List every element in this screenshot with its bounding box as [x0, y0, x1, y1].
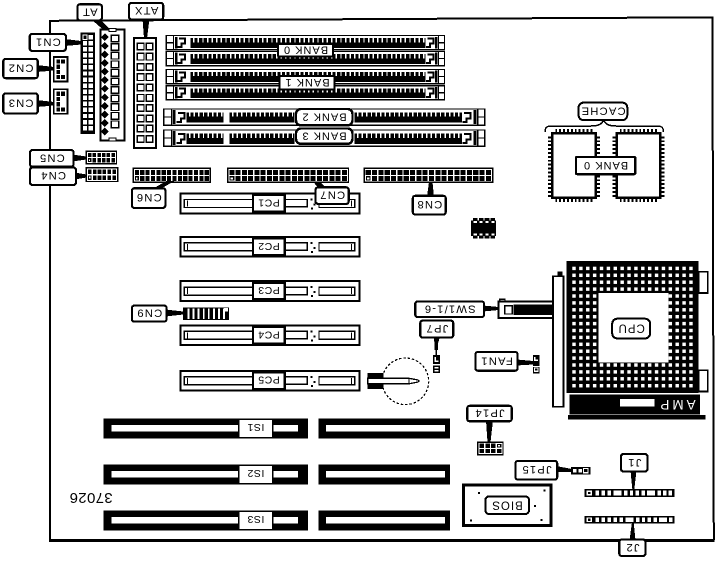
- svg-text:CN5: CN5: [39, 151, 65, 163]
- svg-text:BANK 0: BANK 0: [283, 44, 328, 56]
- svg-text:IS1: IS1: [247, 421, 264, 433]
- svg-text:JP14: JP14: [474, 407, 504, 419]
- svg-text:JP7: JP7: [425, 322, 448, 334]
- svg-text:CPU: CPU: [618, 322, 645, 334]
- svg-text:AMP: AMP: [657, 397, 695, 412]
- svg-text:37026: 37026: [69, 489, 112, 506]
- svg-text:BIOS: BIOS: [491, 499, 522, 511]
- svg-text:SW1/1-6: SW1/1-6: [424, 302, 476, 314]
- svg-text:CN9: CN9: [136, 307, 162, 319]
- svg-text:CN1: CN1: [35, 36, 61, 48]
- svg-text:PC1: PC1: [258, 196, 280, 208]
- svg-text:J2: J2: [625, 541, 639, 553]
- svg-text:CN8: CN8: [416, 198, 442, 210]
- svg-text:BANK 3: BANK 3: [301, 130, 346, 142]
- svg-text:PC4: PC4: [258, 328, 280, 340]
- svg-text:CN7: CN7: [319, 189, 345, 201]
- svg-text:IS3: IS3: [247, 513, 264, 525]
- svg-text:CACHE: CACHE: [580, 104, 625, 116]
- svg-text:BANK 2: BANK 2: [301, 111, 346, 123]
- svg-text:PC5: PC5: [258, 374, 280, 386]
- svg-text:IS2: IS2: [247, 467, 264, 479]
- svg-text:J1: J1: [627, 456, 641, 468]
- svg-text:BANK 0: BANK 0: [583, 159, 628, 171]
- svg-text:CN2: CN2: [8, 62, 34, 74]
- svg-text:CN4: CN4: [40, 169, 66, 181]
- svg-text:CN3: CN3: [8, 97, 34, 109]
- svg-text:FAN1: FAN1: [480, 354, 513, 366]
- svg-text:PC3: PC3: [258, 284, 280, 296]
- svg-text:JP15: JP15: [521, 463, 551, 475]
- svg-text:BANK 1: BANK 1: [284, 76, 329, 88]
- svg-text:AT: AT: [82, 5, 98, 17]
- svg-text:ATX: ATX: [134, 4, 159, 16]
- svg-text:PC2: PC2: [258, 240, 280, 252]
- svg-text:CN6: CN6: [136, 191, 162, 203]
